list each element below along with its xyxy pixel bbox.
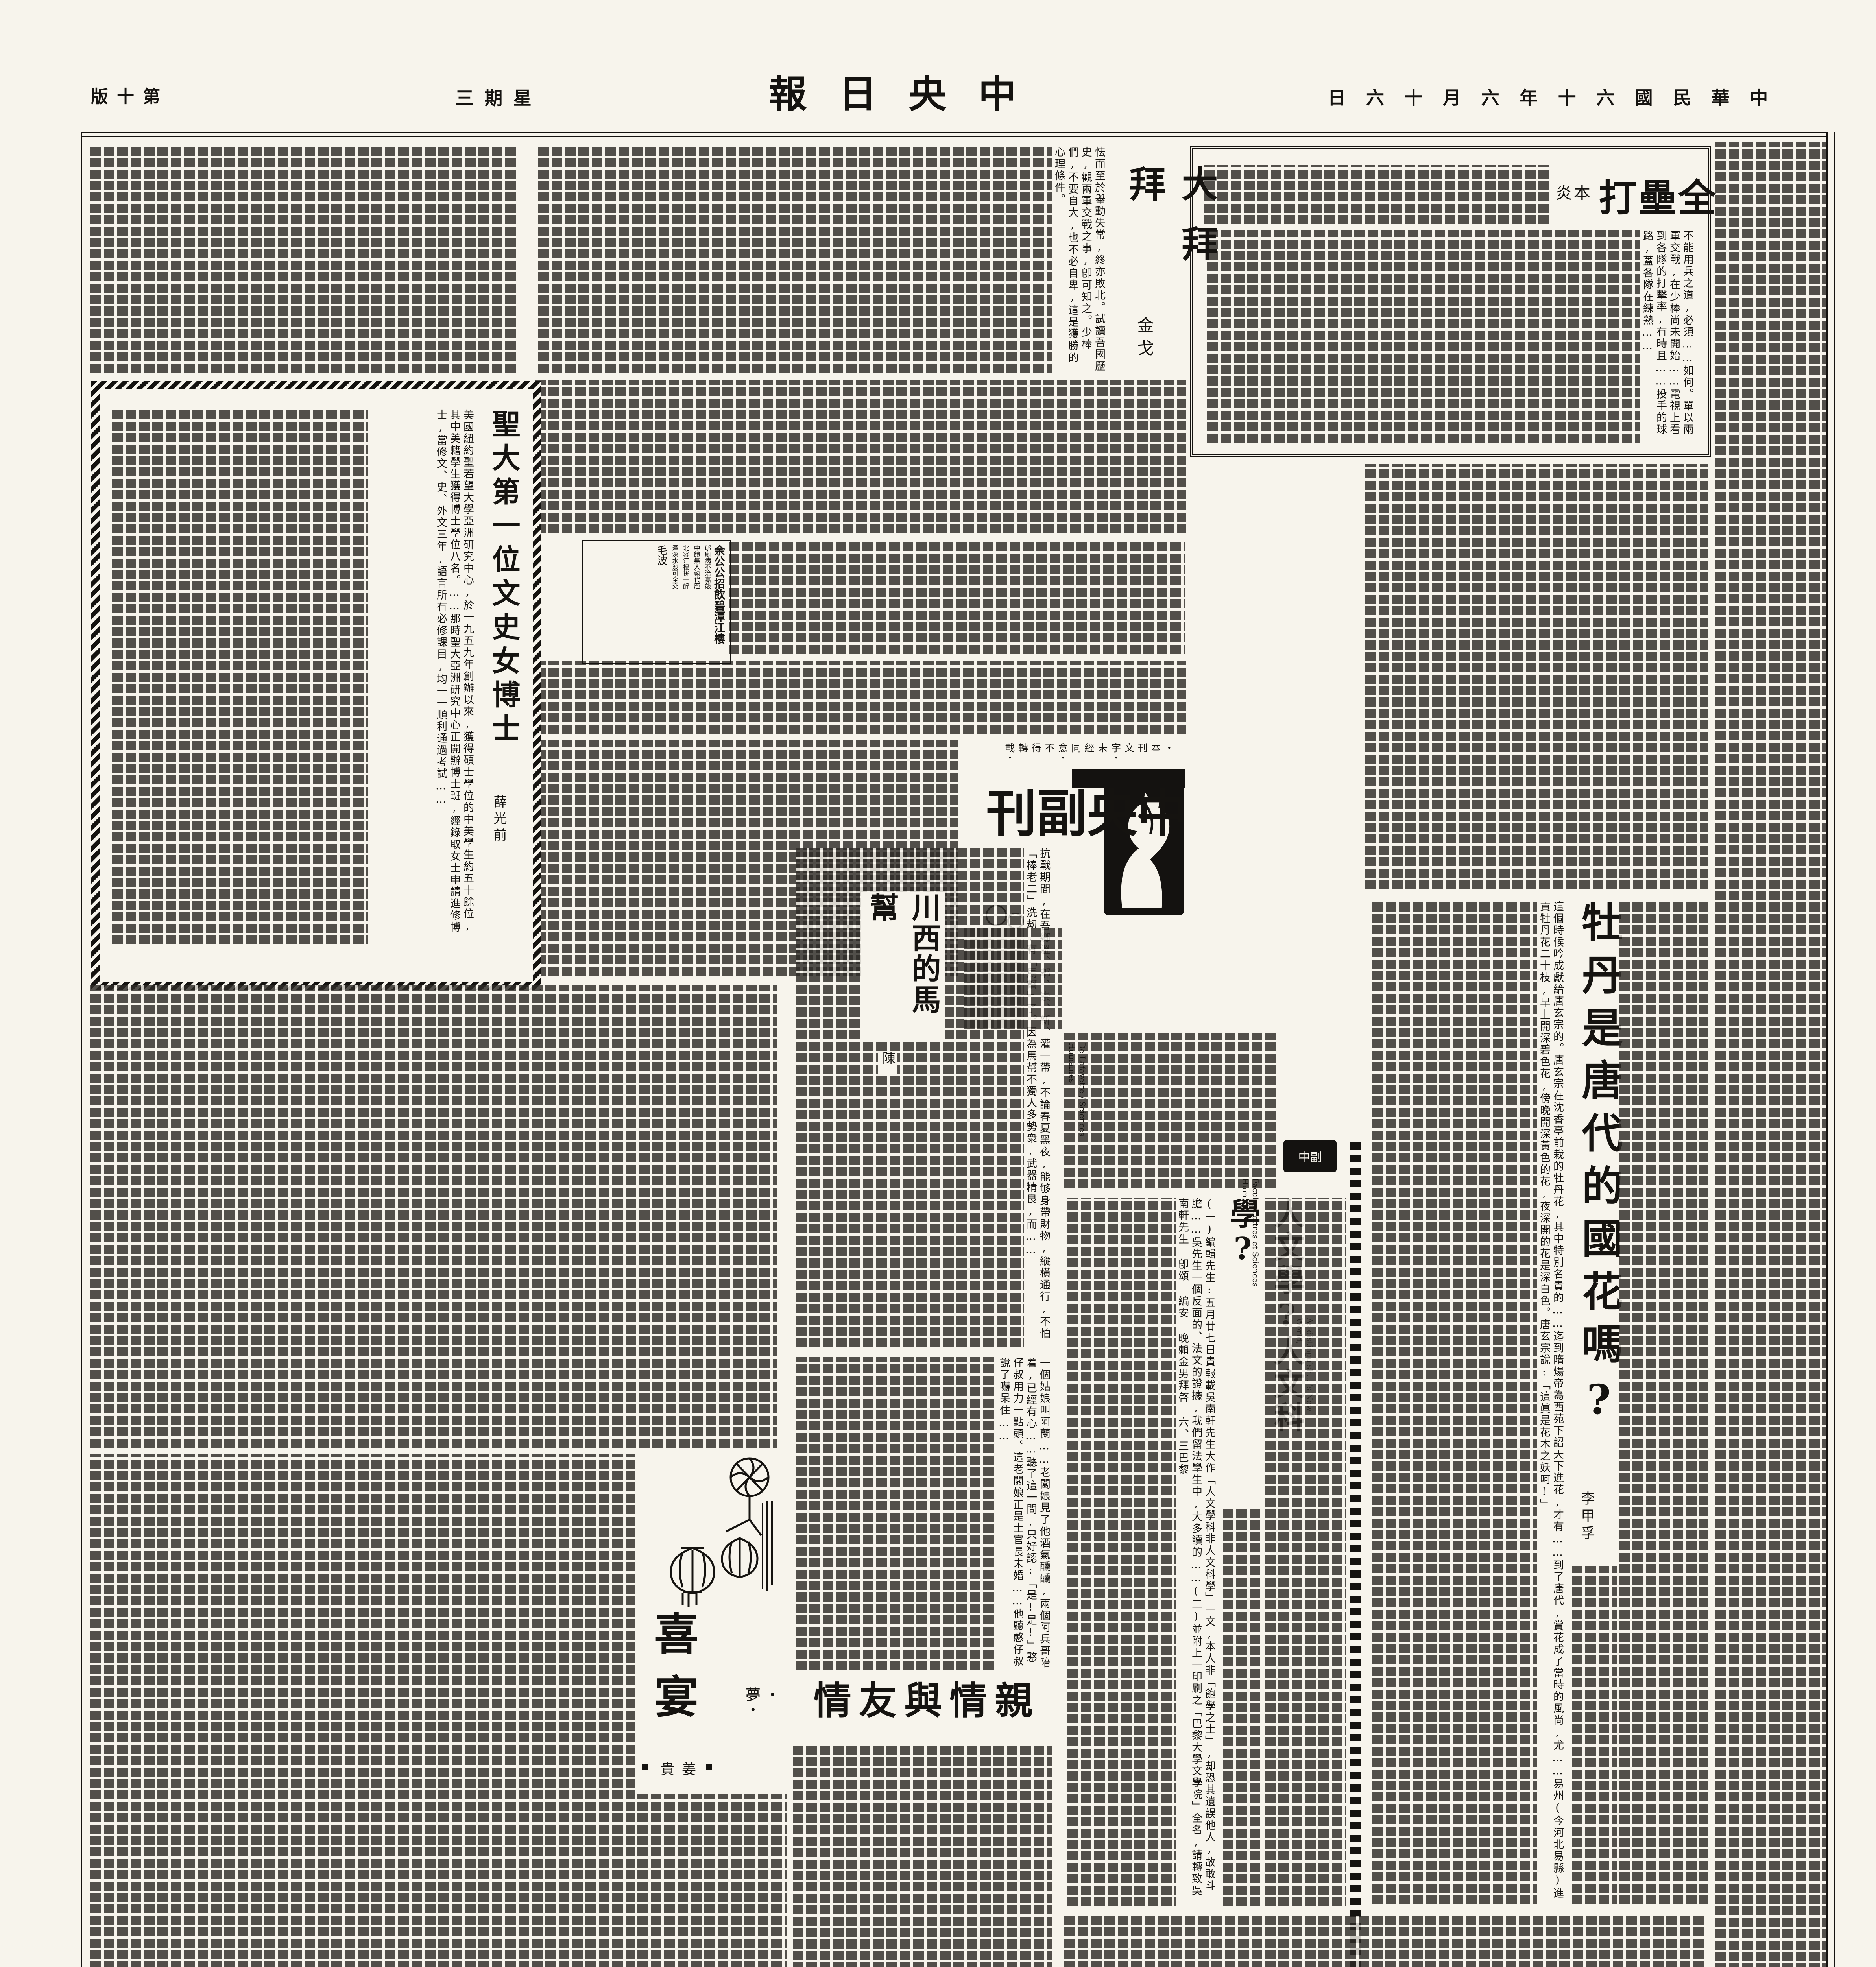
body-text-columns xyxy=(90,985,777,1448)
body-text-columns xyxy=(1365,464,1708,889)
body-text-columns xyxy=(1207,230,1640,443)
body-text-columns xyxy=(535,661,1186,734)
body-text-columns xyxy=(1067,1198,1176,1906)
article-quanleida-excerpt: 不能用兵之道,必須……如何。單以兩軍交戰,在少棒尚未開始……電視上看到各隊的打擊… xyxy=(1640,230,1694,443)
poem-title: 余公公招飲碧潭江樓 xyxy=(711,545,726,659)
article-qinqing-byline: ‧夢‧ xyxy=(742,1687,781,1704)
article-dabaibai-title: 大拜拜 xyxy=(1119,165,1223,338)
article-xiyan-excerpt: 一個姑娘叫阿蘭……老闆娘見了他酒氣醺醺,兩個阿兵哥陪着,已經有心……聽了這一問,… xyxy=(997,1357,1051,1670)
body-text-columns xyxy=(964,928,1062,1029)
body-text-columns xyxy=(1064,1033,1277,1188)
article-quanleida-title: 全壘打 xyxy=(1594,178,1713,221)
article-mudan-excerpt: 這個時候吟成獻給唐玄宗的。唐玄宗在沈香亭前栽的牡丹花,其中特別名貴的……迄到隋煬… xyxy=(1537,901,1564,1904)
body-text-columns xyxy=(90,146,519,373)
article-quanleida-body: 不能用兵之道,必須……如何。單以兩軍交戰,在少棒尚未開始……電視上看到各隊的打擊… xyxy=(1204,230,1694,443)
body-text-columns xyxy=(1572,1566,1617,1904)
body-text-columns xyxy=(1265,1198,1346,1906)
left-border xyxy=(81,132,82,1967)
header-rule-2 xyxy=(81,136,1828,137)
article-renwen-excerpt: (一)編輯先生:五月廿七日貴報載吳南軒先生大作「人文學科非人文科學」一文,本人非… xyxy=(1176,1198,1216,1906)
body-text-columns xyxy=(793,1744,1052,1967)
body-text-columns xyxy=(1064,1916,1706,1967)
body-text-columns xyxy=(1223,1507,1262,1906)
article-dabaibai-body: 怯而至於舉動失常,終亦敗北。試讀吾國歷史,觀兩軍交戰之事,卽可知之。少棒們,不要… xyxy=(535,146,1106,373)
body-text-columns xyxy=(1619,901,1708,1904)
masthead-title: 中央日報 xyxy=(750,74,1029,115)
poem-byline: 毛波 xyxy=(654,545,668,659)
article-shengda-byline: 薛光前 xyxy=(489,795,509,850)
article-chuanxi-excerpt: 抗戰期間,在吾鄉溫、郫、崇、新、灌一帶,不論春夏黑夜,能够身帶財物,縱橫通行,不… xyxy=(1024,848,1051,1347)
weekday: 星期三 xyxy=(449,89,535,109)
body-text-columns xyxy=(535,380,1186,533)
article-mudan-byline: 李甲孚 xyxy=(1576,1491,1597,1550)
article-mudan-body: 這個時候吟成獻給唐玄宗的。唐玄宗在沈香亭前栽的牡丹花,其中特別名貴的……迄到隋煬… xyxy=(1369,901,1564,1904)
poem-box: 余公公招飲碧潭江樓 郇廚病不治嘉殽中饋無人孰代庖北容江樓拚一醉潭深水淡可全交 毛… xyxy=(582,540,731,664)
article-shengda-excerpt: 美國紐約聖若望大學亞洲研究中心,於一九五九年創辦以來,獲得碩士學位的中美學生約五… xyxy=(376,409,474,944)
article-xiyan-title: 喜宴 xyxy=(641,1611,704,1745)
body-text-columns xyxy=(538,146,1052,373)
article-xiyan-byline: 姜貴 xyxy=(634,1762,719,1777)
article-dabaibai-byline: 金戈 xyxy=(1132,317,1156,372)
poem-line: 中饋無人孰代庖 xyxy=(692,545,701,659)
article-renwen-body: (一)編輯先生:五月廿七日貴報載吳南軒先生大作「人文學科非人文科學」一文,本人非… xyxy=(1064,1198,1216,1906)
poem-line: 郇廚病不治嘉殽 xyxy=(703,545,712,659)
body-text-columns xyxy=(112,409,368,944)
article-xiyan-body: 一個姑娘叫阿蘭……老闆娘見了他酒氣醺醺,兩個阿兵哥陪着,已經有心……聽了這一問,… xyxy=(793,1357,1051,1670)
poem-line: 北容江樓拚一醉 xyxy=(681,545,690,659)
body-text-columns xyxy=(637,1794,787,1967)
newspaper-page: 第十版 星期三 中央日報 中華民國六十年六月十六日 (八六) 全壘打 本炎 不能… xyxy=(0,0,1876,1967)
page-number: 第十版 xyxy=(85,87,162,107)
body-text-columns xyxy=(796,1357,997,1670)
poem-line: 潭深水淡可全交 xyxy=(670,545,679,659)
body-text-columns xyxy=(1715,142,1826,1967)
date-line: 中華民國六十年六月十六日 xyxy=(1316,88,1776,109)
right-border xyxy=(1826,132,1828,1967)
right-border-outer xyxy=(1834,132,1835,1967)
body-text-columns xyxy=(1372,901,1537,1904)
kan-title: 中央副刊 xyxy=(982,787,1183,846)
column-divider-ornament xyxy=(1350,1137,1361,1967)
article-quanleida-byline: 本炎 xyxy=(1553,184,1590,204)
article-qinqing-title: 親情與友情 xyxy=(807,1681,1033,1722)
header-rule xyxy=(81,132,1828,133)
body-text-columns xyxy=(90,1454,635,1967)
body-text-columns xyxy=(729,540,1185,654)
lantern-illustration xyxy=(649,1454,787,1607)
kan-seal: 中副 xyxy=(1283,1140,1337,1172)
article-chuanxi-title: 川西的馬幫 xyxy=(861,892,945,1042)
article-dabaibai-excerpt: 怯而至於舉動失常,終亦敗北。試讀吾國歷史,觀兩軍交戰之事,卽可知之。少棒們,不要… xyxy=(1052,146,1106,373)
article-renwen-english-note: De Lafayette / Sciences Humaines xyxy=(1067,1043,1088,1145)
article-chuanxi-byline: 陳 xyxy=(878,1051,897,1075)
kan-copyright-notice: ‧本刊文字‧未經同意‧不得轉載‧ xyxy=(1003,743,1175,755)
body-text-columns xyxy=(1204,165,1550,224)
article-shengda-title: 聖大第一位文史女博士 xyxy=(483,409,524,779)
